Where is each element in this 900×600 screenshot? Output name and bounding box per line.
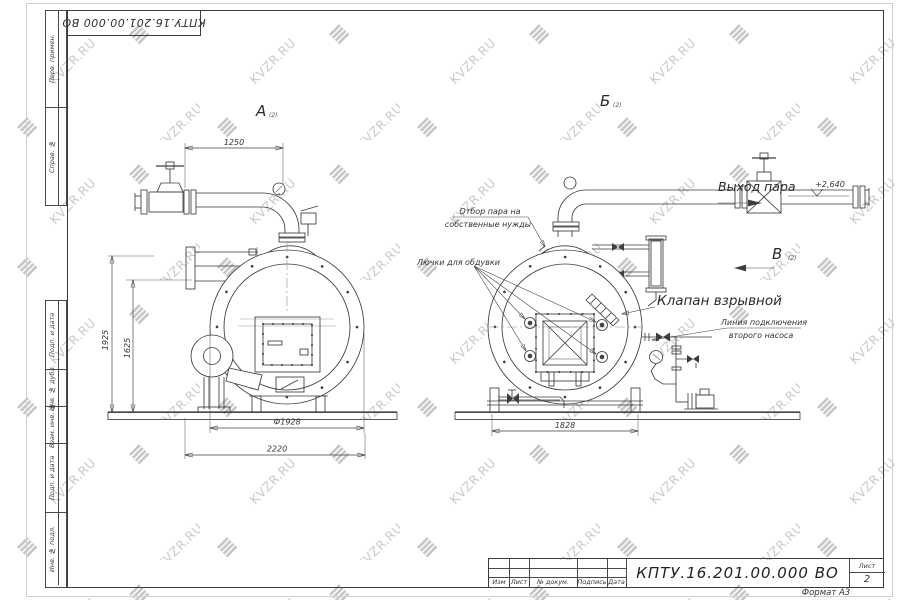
dim-1250: 1250	[224, 138, 244, 147]
dim-1925: 1925	[101, 330, 110, 350]
dim-1828: 1828	[555, 421, 575, 430]
rear-view-annotations: Б (2) Выход пара +2,640 В (2) Отбор пара…	[416, 92, 849, 436]
view-label-a-ref: (2)	[269, 112, 278, 119]
format-label: Формат А3	[770, 588, 882, 598]
sheet-label: Лист	[849, 559, 885, 573]
view-label-a: А	[255, 102, 266, 120]
boiler-front-view	[108, 162, 397, 420]
drawing-designation: КПТУ.16.201.00.000 ВО	[626, 559, 849, 587]
tb-col-podpis: Подпись	[577, 577, 607, 587]
boiler-rear-view	[455, 153, 869, 420]
steam-outlet-label: Выход пара	[718, 179, 796, 194]
blow-hatches-label: Лючки для обдувки	[416, 258, 500, 267]
view-label-b-ref: (2)	[613, 102, 622, 109]
tb-col-docnum: № докум.	[529, 577, 577, 587]
explosion-valve-label: Клапан взрывной	[657, 293, 782, 309]
dim-1625: 1625	[123, 338, 132, 358]
tb-col-izm: Изм	[489, 577, 509, 587]
view-label-b: Б	[600, 92, 610, 110]
tb-col-list: Лист	[509, 577, 529, 587]
title-block: Изм Лист № докум. Подпись Дата КПТУ.16.2…	[488, 558, 884, 588]
view-label-v-ref: (2)	[788, 255, 797, 262]
second-pump-label-line2: второго насоса	[729, 331, 794, 340]
boiler-drawing: 1250 1925 1625 Ф1928 2220 А (2)	[0, 0, 900, 600]
elevation-mark: +2,640	[815, 180, 845, 189]
feed-pump-piping	[642, 333, 718, 410]
drawing-sheet: KVZR.RU KVZR.RU КПТУ.16.201.00.000 ВО Пе…	[0, 0, 900, 600]
view-label-v: В	[772, 245, 782, 263]
own-needs-label-line1: Отбор пара на	[459, 207, 520, 216]
dim-2220: 2220	[267, 445, 287, 454]
tb-col-data: Дата	[607, 577, 626, 587]
pump-pressure-gauge	[650, 351, 663, 364]
own-needs-label-line2: собственные нужды	[445, 220, 531, 229]
dim-diameter-1928: Ф1928	[273, 418, 300, 427]
sheet-number: 2	[849, 572, 885, 587]
second-pump-label-line1: Линия подключения	[720, 318, 807, 327]
